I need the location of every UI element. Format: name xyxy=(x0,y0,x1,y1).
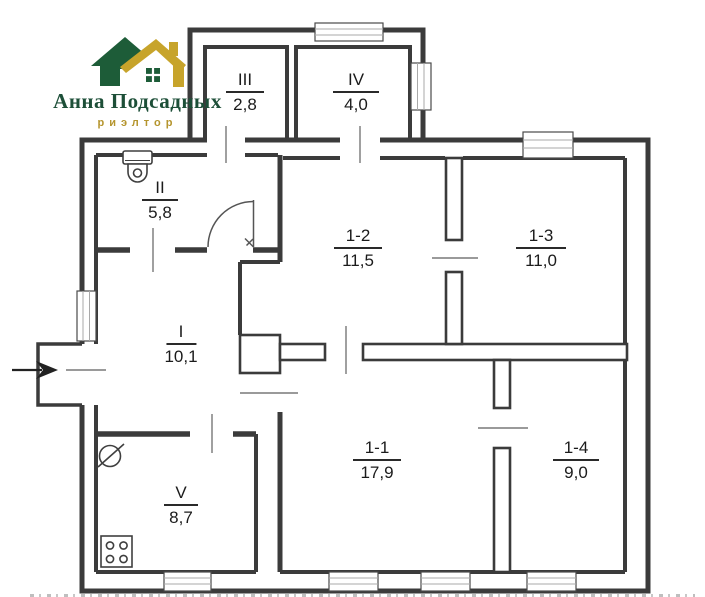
room-number: 1-2 xyxy=(334,226,382,246)
room-number: V xyxy=(164,483,198,503)
room-area: 17,9 xyxy=(353,463,401,483)
window xyxy=(421,572,470,591)
hall-pillar xyxy=(240,335,280,373)
room-label-II: II 5,8 xyxy=(142,178,178,224)
logo-title: Анна Подсадных xyxy=(40,89,235,114)
floorplan-page: III 2,8 IV 4,0 II 5,8 I 10,1 1-2 11,5 1-… xyxy=(0,0,705,597)
thick-partitions xyxy=(240,158,627,572)
room-label-1-4: 1-4 9,0 xyxy=(553,438,599,484)
room-number: 1-4 xyxy=(553,438,599,458)
room-number: 1-3 xyxy=(516,226,566,246)
room-label-V: V 8,7 xyxy=(164,483,198,529)
room-area: 9,0 xyxy=(553,463,599,483)
room-label-1-1: 1-1 17,9 xyxy=(353,438,401,484)
room-number: IV xyxy=(333,70,379,90)
entrance-arrow xyxy=(12,361,58,379)
window xyxy=(527,572,576,591)
label-underline xyxy=(334,247,382,249)
label-underline xyxy=(553,459,599,461)
room-label-1-3: 1-3 11,0 xyxy=(516,226,566,272)
label-underline xyxy=(353,459,401,461)
room-area: 5,8 xyxy=(142,203,178,223)
label-underline xyxy=(164,504,198,506)
window xyxy=(77,291,96,341)
room-area: 11,5 xyxy=(334,251,382,271)
room-area: 4,0 xyxy=(333,95,379,115)
window xyxy=(164,572,211,591)
window xyxy=(523,132,573,158)
room-area: 10,1 xyxy=(164,347,197,367)
room-number: II xyxy=(142,178,178,198)
label-underline xyxy=(516,247,566,249)
room-number: I xyxy=(164,322,197,342)
room-area: 8,7 xyxy=(164,508,198,528)
stove-icon xyxy=(101,536,132,567)
logo-subtitle: риэлтор xyxy=(40,117,235,129)
label-underline xyxy=(142,199,178,201)
window xyxy=(315,23,383,41)
room-label-1-2: 1-2 11,5 xyxy=(334,226,382,272)
label-underline xyxy=(333,91,379,93)
room-number: 1-1 xyxy=(353,438,401,458)
sink-icon xyxy=(98,444,124,467)
houses-icon xyxy=(90,36,186,87)
label-underline xyxy=(166,343,196,345)
room-label-IV: IV 4,0 xyxy=(333,70,379,116)
realtor-logo: Анна Подсадных риэлтор xyxy=(40,36,235,129)
window xyxy=(411,63,431,110)
window xyxy=(329,572,378,591)
room-label-I: I 10,1 xyxy=(164,322,197,368)
room-area: 11,0 xyxy=(516,251,566,271)
door-arc xyxy=(208,200,254,247)
